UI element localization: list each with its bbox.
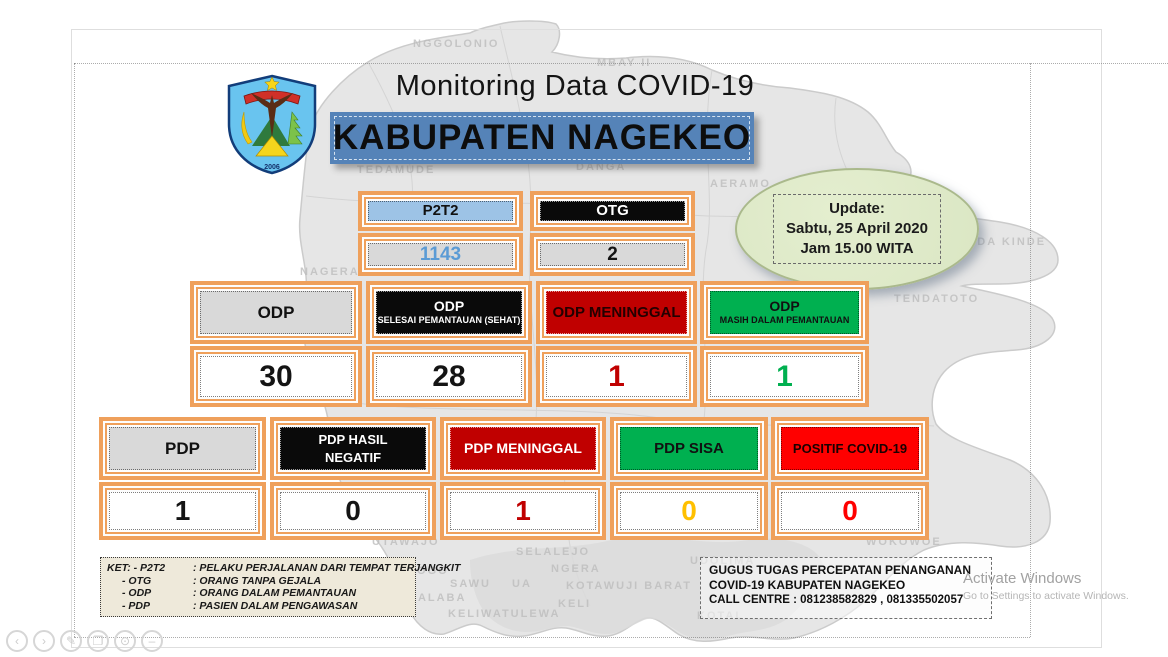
selection-dash-right — [1030, 63, 1031, 637]
watermark-line-1: Activate Windows — [963, 570, 1129, 587]
taskforce-line-1: GUGUS TUGAS PERCEPATAN PENANGANAN — [709, 563, 983, 578]
stat-odp-value: 30 — [190, 346, 362, 407]
stat-positif-covid19-value: 0 — [771, 482, 929, 540]
stat-pdp-sisa-label: PDP SISA — [654, 441, 724, 457]
stat-odp-header: ODP — [190, 281, 362, 344]
taskforce-info-box: GUGUS TUGAS PERCEPATAN PENANGANAN COVID-… — [700, 557, 992, 619]
legend-term: - ODP — [107, 587, 193, 600]
previous-page-icon: ‹ — [15, 634, 19, 648]
stat-pdp-meninggal-label: PDP MENINGGAL — [464, 441, 582, 456]
stat-pdp-hasil-negatif-header: PDP HASILNEGATIF — [270, 417, 436, 480]
stat-odp-selesai-label: SELESAI PEMANTAUAN (SEHAT) — [378, 316, 521, 325]
legend-definition: : PASIEN DALAM PENGAWASAN — [193, 600, 409, 613]
viewer-controls: ‹›✎❐⊙– — [6, 630, 163, 652]
magnifier-icon: ⊙ — [120, 634, 130, 648]
legend-term: - OTG — [107, 575, 193, 588]
viewer-previous-page-button[interactable]: ‹ — [6, 630, 28, 652]
stat-pdp-sisa-number: 0 — [681, 496, 697, 525]
stat-odp-meninggal-value: 1 — [536, 346, 697, 407]
next-page-icon: › — [42, 634, 46, 648]
selection-dash-left — [74, 63, 75, 637]
stat-pdp-sisa-header: PDP SISA — [610, 417, 768, 480]
stat-pdp-sisa-value: 0 — [610, 482, 768, 540]
stat-pdp-number: 1 — [175, 496, 191, 525]
pen-tool-icon: ✎ — [66, 634, 76, 648]
legend-row: - PDP: PASIEN DALAM PENGAWASAN — [107, 600, 409, 613]
stat-odp-selesai-value: 28 — [366, 346, 532, 407]
stat-positif-covid19-number: 0 — [842, 496, 858, 525]
stat-odp-selesai-label: ODP — [434, 299, 464, 314]
stat-p2t2-label: P2T2 — [423, 203, 459, 219]
stat-odp-selesai-number: 28 — [432, 361, 465, 393]
legend-row: - ODP: ORANG DALAM PEMANTAUAN — [107, 587, 409, 600]
stat-pdp-hasil-negatif-value: 0 — [270, 482, 436, 540]
legend-row: - OTG: ORANG TANPA GEJALA — [107, 575, 409, 588]
update-title: Update: — [786, 199, 928, 219]
stat-otg-value: 2 — [530, 233, 695, 276]
stat-odp-masih-label: MASIH DALAM PEMANTAUAN — [720, 316, 850, 325]
stat-odp-masih-number: 1 — [776, 361, 793, 393]
stat-odp-masih-label: ODP — [769, 299, 799, 314]
update-date: Sabtu, 25 April 2020 — [786, 219, 928, 239]
stat-odp-masih-value: 1 — [700, 346, 869, 407]
stat-p2t2-number: 1143 — [420, 245, 461, 265]
stat-odp-meninggal-header: ODP MENINGGAL — [536, 281, 697, 344]
stat-pdp-header: PDP — [99, 417, 266, 480]
kabupaten-banner: KABUPATEN NAGEKEO — [330, 112, 754, 164]
update-text-box: Update: Sabtu, 25 April 2020 Jam 15.00 W… — [773, 194, 941, 264]
legend-box: KET: - P2T2: PELAKU PERJALANAN DARI TEMP… — [100, 557, 416, 617]
stat-pdp-meninggal-value: 1 — [440, 482, 606, 540]
legend-row: KET: - P2T2: PELAKU PERJALANAN DARI TEMP… — [107, 562, 409, 575]
stat-p2t2-value: 1143 — [358, 233, 523, 276]
stat-positif-covid19-label: POSITIF COVID-19 — [793, 442, 907, 456]
stat-p2t2-header: P2T2 — [358, 191, 523, 231]
viewer-pen-tool-button[interactable]: ✎ — [60, 630, 82, 652]
selection-dash-top — [74, 63, 1168, 64]
stat-pdp-hasil-negatif-label: NEGATIF — [325, 449, 381, 467]
legend-definition: : ORANG TANPA GEJALA — [193, 575, 409, 588]
crest-year: 2006 — [264, 164, 280, 171]
update-bubble: Update: Sabtu, 25 April 2020 Jam 15.00 W… — [735, 168, 979, 290]
stat-odp-meninggal-number: 1 — [608, 361, 625, 393]
stat-otg-header: OTG — [530, 191, 695, 231]
banner-label: KABUPATEN NAGEKEO — [333, 118, 751, 158]
stat-odp-selesai-header: ODPSELESAI PEMANTAUAN (SEHAT) — [366, 281, 532, 344]
stat-pdp-meninggal-number: 1 — [515, 496, 531, 525]
viewer-magnifier-button[interactable]: ⊙ — [114, 630, 136, 652]
stat-odp-meninggal-label: ODP MENINGGAL — [552, 305, 680, 321]
stat-pdp-meninggal-header: PDP MENINGGAL — [440, 417, 606, 480]
page-title: Monitoring Data COVID-19 — [295, 70, 855, 103]
stat-pdp-value: 1 — [99, 482, 266, 540]
activate-windows-watermark: Activate Windows Go to Settings to activ… — [963, 570, 1129, 602]
legend-term: KET: - P2T2 — [107, 562, 193, 575]
stat-odp-masih-header: ODPMASIH DALAM PEMANTAUAN — [700, 281, 869, 344]
viewer-snapshot-button[interactable]: ❐ — [87, 630, 109, 652]
stat-positif-covid19-header: POSITIF COVID-19 — [771, 417, 929, 480]
watermark-line-2: Go to Settings to activate Windows. — [963, 590, 1129, 602]
selection-dash-bottom — [74, 637, 1030, 638]
stat-pdp-hasil-negatif-label: PDP HASIL — [318, 431, 387, 449]
stat-otg-label: OTG — [596, 203, 629, 219]
taskforce-call-centre: CALL CENTRE : 081238582829 , 08133550205… — [709, 593, 983, 608]
legend-term: - PDP — [107, 600, 193, 613]
stat-odp-label: ODP — [258, 304, 295, 322]
slide-canvas: NGGOLONIOMBAY IITEDAMUDEDANGAAERAMONAGER… — [0, 0, 1168, 657]
stat-odp-number: 30 — [259, 361, 292, 393]
legend-definition: : ORANG DALAM PEMANTAUAN — [193, 587, 409, 600]
stat-pdp-label: PDP — [165, 440, 200, 458]
viewer-collapse-button[interactable]: – — [141, 630, 163, 652]
legend-definition: : PELAKU PERJALANAN DARI TEMPAT TERJANGK… — [193, 562, 460, 575]
snapshot-icon: ❐ — [93, 634, 104, 648]
legend-rows: KET: - P2T2: PELAKU PERJALANAN DARI TEMP… — [107, 562, 409, 612]
taskforce-line-2: COVID-19 KABUPATEN NAGEKEO — [709, 578, 983, 593]
collapse-icon: – — [149, 634, 156, 648]
stat-pdp-hasil-negatif-number: 0 — [345, 496, 361, 525]
viewer-next-page-button[interactable]: › — [33, 630, 55, 652]
stat-otg-number: 2 — [607, 245, 618, 265]
update-time: Jam 15.00 WITA — [786, 239, 928, 259]
